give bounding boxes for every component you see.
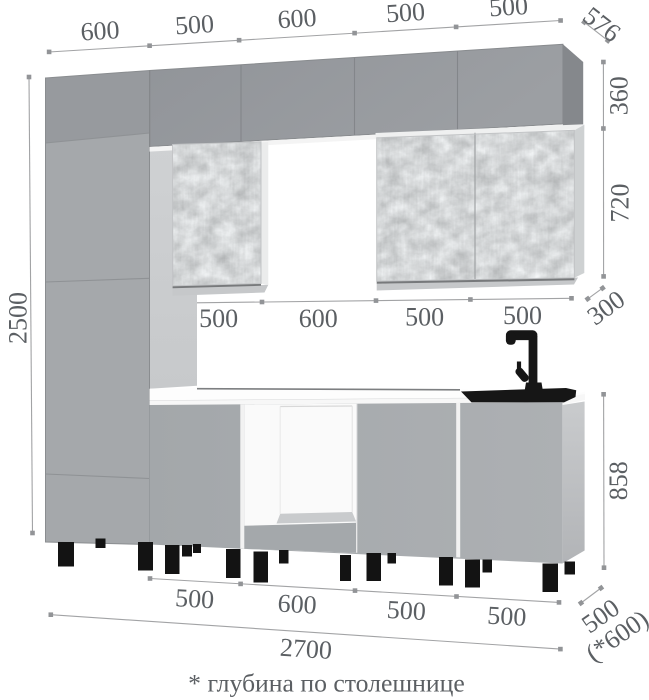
svg-text:500: 500 <box>174 583 215 614</box>
svg-text:360: 360 <box>604 76 633 115</box>
svg-text:720: 720 <box>605 184 634 223</box>
svg-text:600: 600 <box>277 589 318 620</box>
svg-text:600: 600 <box>80 15 121 46</box>
svg-text:2500: 2500 <box>3 292 32 344</box>
svg-text:600: 600 <box>277 3 318 34</box>
svg-text:500: 500 <box>174 9 215 40</box>
svg-text:500: 500 <box>405 303 444 332</box>
svg-text:2700: 2700 <box>279 633 333 665</box>
svg-text:500: 500 <box>503 301 542 330</box>
svg-text:858: 858 <box>604 461 633 500</box>
svg-text:600: 600 <box>299 304 338 333</box>
svg-text:500: 500 <box>199 304 238 333</box>
svg-text:* глубина по столешнице: * глубина по столешнице <box>188 669 465 698</box>
svg-text:500: 500 <box>386 595 427 626</box>
svg-text:500: 500 <box>385 0 426 28</box>
svg-text:500: 500 <box>488 0 529 22</box>
svg-text:500: 500 <box>487 601 528 632</box>
